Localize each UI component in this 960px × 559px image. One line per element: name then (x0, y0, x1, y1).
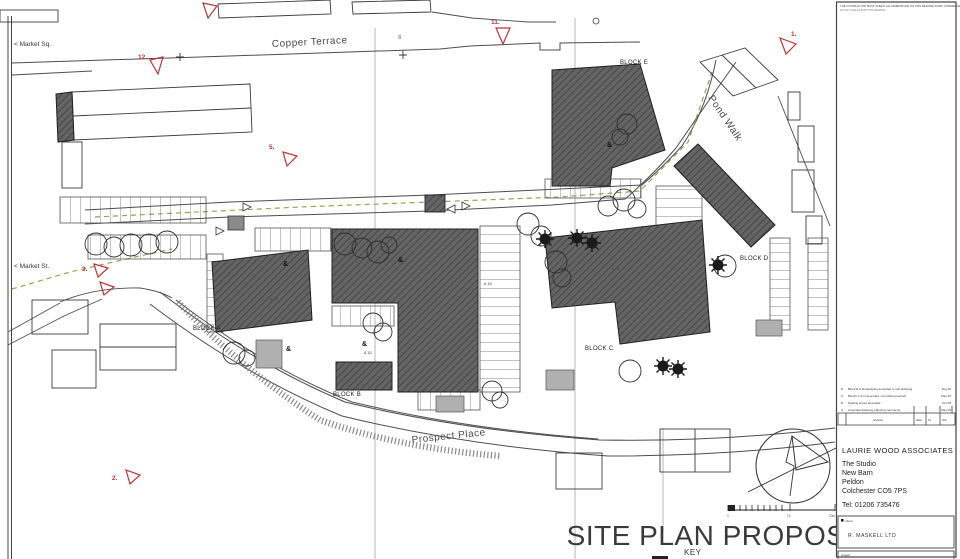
shrub-symbol: & (362, 341, 367, 348)
building-block-e (552, 64, 665, 186)
rev-header-chk: chk (942, 418, 947, 422)
rev-date: May 05 (941, 394, 951, 398)
label-block-b: BLOCK B (333, 392, 361, 398)
label-market-sq: < Market Sq. (14, 41, 51, 48)
marker-label-3: 3. (82, 266, 88, 273)
rev-date: Aug 05 (941, 387, 951, 391)
road-crossings (228, 195, 445, 230)
practice-address-3: Peldon (842, 479, 864, 486)
spot-level: 6.15 (270, 296, 279, 301)
building-gable-existing (56, 92, 74, 142)
label-market-st: < Market St. (14, 263, 49, 270)
grid-label-05: 05 (397, 34, 402, 39)
marker-triangle-2 (126, 470, 140, 484)
client-label: client (846, 519, 853, 523)
scale-start: 0 (727, 514, 729, 518)
marker-triangle-5 (283, 152, 297, 166)
title-block-panel: THE CONTRACTOR MUST CHECK ALL DIMENSIONS… (837, 2, 960, 559)
label-block-e: BLOCK E (620, 60, 648, 66)
key-label: KEY (684, 548, 702, 557)
spot-level: 6.15 (612, 266, 621, 271)
rev-header-by: by (928, 418, 932, 422)
label-block-d: BLOCK D (740, 256, 769, 262)
marker-label-2: 2. (112, 475, 118, 482)
scale-end: 20m (829, 514, 836, 518)
rev-ref: A (841, 408, 843, 412)
marker-label-1: 1. (791, 31, 797, 38)
building-block-a (212, 250, 312, 332)
marker-triangle-3b (100, 282, 114, 295)
rev-date: May 05 (941, 408, 951, 412)
survey-point (593, 18, 599, 24)
client-name: R. MASKELL LTD (848, 533, 896, 539)
building-block-b-annex (336, 362, 392, 390)
rev-header-label: revision (873, 418, 884, 422)
practice-name: LAURIE WOOD ASSOCIATES (842, 446, 953, 455)
fine-print-note: THE CONTRACTOR MUST CHECK ALL DIMENSIONS… (840, 4, 960, 8)
shrub-symbol: & (286, 346, 291, 353)
label-block-c: BLOCK C (585, 346, 614, 352)
shrub-symbol: & (283, 261, 288, 268)
marker-label-11: 11. (491, 19, 500, 26)
practice-address-4: Colchester CO5 7PS (842, 488, 907, 495)
practice-address-2: New Barn (842, 470, 873, 477)
rev-note: Block E & landscaping amended to suit pl… (848, 387, 913, 391)
marker-triangle-top (203, 3, 217, 18)
rev-note: Parking layout amended (848, 401, 881, 405)
survey-crosses (176, 51, 407, 61)
spot-level: 6.15 (364, 350, 373, 355)
marker-triangle-3a (94, 264, 108, 277)
street-copper-terrace: Copper Terrace (272, 35, 348, 50)
rev-ref: B (841, 401, 843, 405)
marker-label-5: 5. (269, 144, 275, 151)
practice-address-1: The Studio (842, 461, 876, 468)
site-plan-drawing: 1. 2. 3. 5. 11. 12. 05 6.15 6.15 6.15 6.… (0, 0, 960, 559)
fine-print-note-2: DO NOT SCALE FROM THIS DRAWING (840, 9, 886, 12)
rev-note: Amended following planning comments (848, 408, 901, 412)
marker-label-12: 12. (138, 54, 147, 61)
sheet-left-border (8, 16, 12, 559)
proposed-buildings (56, 64, 775, 392)
marker-triangle-12 (150, 57, 163, 74)
street-prospect-place: Prospect Place (411, 427, 486, 446)
rev-date: Oct 05 (942, 401, 951, 405)
label-block-a: BLOCK A (193, 326, 221, 332)
rev-note: Blocks C & D amended, car parking revise… (848, 394, 906, 398)
north-arrow-icon (748, 429, 840, 503)
shrub-symbol: & (398, 257, 403, 264)
scale-mid: 10 (787, 514, 791, 518)
spot-level: 6.15 (484, 281, 493, 286)
street-pond-walk: Pond Walk (706, 94, 745, 144)
marker-triangle-11 (496, 28, 510, 44)
practice-tel: Tel: 01206 735476 (842, 502, 900, 509)
scale-bar: 0 10 20m (727, 504, 836, 518)
project-label: project (841, 553, 850, 557)
drawing-sheet: 1. 2. 3. 5. 11. 12. 05 6.15 6.15 6.15 6.… (0, 0, 960, 559)
shrub-symbol: & (607, 142, 612, 149)
rev-header-date: date (916, 418, 922, 422)
marker-triangle-1 (780, 38, 796, 54)
